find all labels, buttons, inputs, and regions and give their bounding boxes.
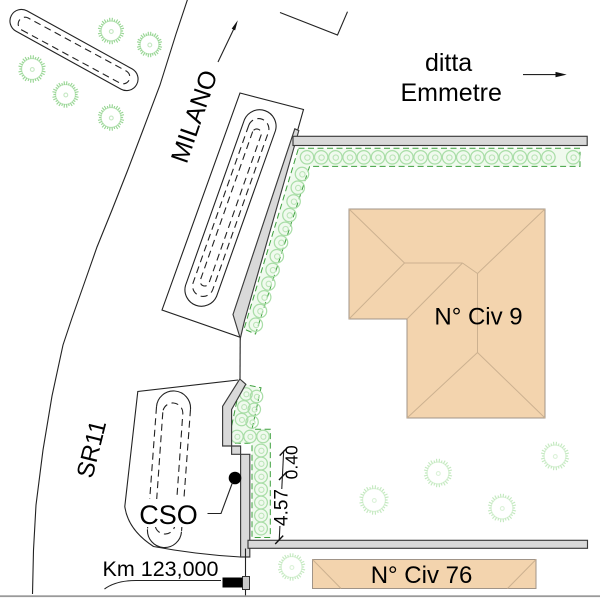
svg-text:ditta: ditta (425, 49, 472, 77)
svg-text:0.40: 0.40 (281, 445, 301, 479)
svg-text:Emmetre: Emmetre (400, 79, 501, 107)
svg-text:SR11: SR11 (72, 418, 112, 481)
svg-text:MILANO: MILANO (166, 67, 224, 167)
svg-text:Km 123,000: Km 123,000 (103, 557, 219, 581)
svg-text:CSO: CSO (139, 500, 198, 530)
svg-text:4.57: 4.57 (272, 489, 293, 526)
svg-text:N° Civ 76: N° Civ 76 (371, 562, 473, 589)
svg-text:N° Civ 9: N° Civ 9 (434, 304, 522, 331)
